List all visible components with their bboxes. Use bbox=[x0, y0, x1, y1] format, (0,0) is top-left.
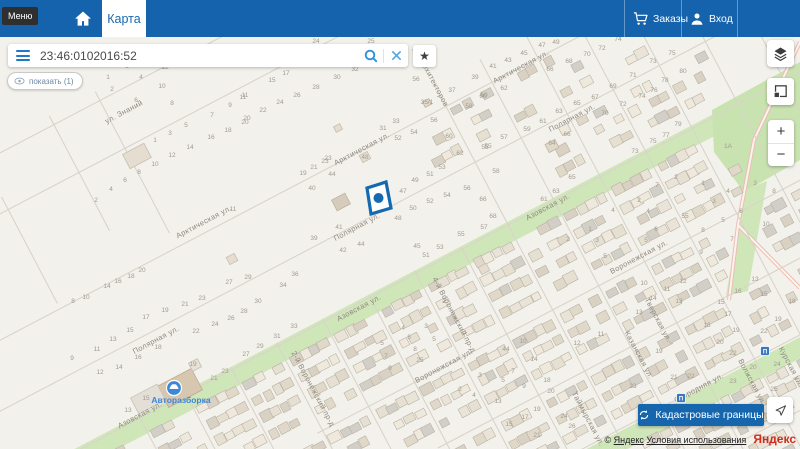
lot-number: 22 bbox=[192, 328, 200, 335]
lot-number: 28 bbox=[240, 308, 248, 315]
lot-number: 4 bbox=[401, 325, 405, 332]
lot-number: 21 bbox=[210, 375, 218, 382]
lot-number: 74 bbox=[638, 93, 646, 100]
lot-number: 5 bbox=[432, 336, 436, 343]
lot-number: 65 bbox=[568, 174, 576, 181]
lot-number: 11 bbox=[94, 346, 101, 353]
favorite-button[interactable]: ★ bbox=[413, 45, 436, 67]
lot-number: 5 bbox=[380, 340, 384, 347]
svg-text:П: П bbox=[763, 349, 767, 355]
lot-number: 53 bbox=[436, 244, 444, 251]
lot-number: 17 bbox=[282, 70, 290, 77]
lot-number: 45 bbox=[520, 50, 528, 57]
lot-number: 23 bbox=[198, 295, 206, 302]
show-results-label: показать (1) bbox=[29, 77, 74, 86]
lot-number: 45 bbox=[413, 243, 421, 250]
map-canvas[interactable]: 1312421068119752018161314121086421117151… bbox=[0, 0, 800, 449]
lot-number: 1 bbox=[106, 74, 110, 81]
frame-icon bbox=[772, 83, 789, 100]
lot-number: 56 bbox=[412, 76, 420, 83]
lot-number: 4 bbox=[611, 207, 615, 214]
lot-number: 2 bbox=[637, 197, 641, 204]
lot-number: 10 bbox=[640, 280, 648, 287]
lot-number: 75 bbox=[668, 50, 676, 57]
lot-number: 20 bbox=[716, 339, 724, 346]
lot-number: 6 bbox=[654, 226, 658, 233]
lot-number: 3 bbox=[712, 198, 716, 205]
menu-tooltip-label: Меню bbox=[8, 11, 32, 21]
lot-number: 6 bbox=[123, 177, 127, 184]
lot-number: 35/1 bbox=[421, 99, 434, 106]
lot-number: 4 bbox=[139, 74, 143, 81]
lot-number: 1 bbox=[588, 226, 592, 233]
lot-number: 73 bbox=[649, 58, 657, 65]
lot-number: 55 bbox=[681, 213, 689, 220]
lot-number: 18 bbox=[154, 344, 162, 351]
lot-number: 15 bbox=[126, 327, 134, 334]
lot-number: 36 bbox=[291, 271, 299, 278]
lot-number: 40 bbox=[308, 185, 316, 192]
lot-number: 79 bbox=[674, 121, 682, 128]
lot-number: 10 bbox=[82, 294, 90, 301]
lot-number: 4 bbox=[109, 186, 113, 193]
lot-number: 3 bbox=[478, 372, 482, 379]
lot-number: 1 bbox=[153, 137, 157, 144]
lot-number: 62 bbox=[456, 150, 464, 157]
lot-number: 64 bbox=[548, 140, 556, 147]
lot-number: 14 bbox=[103, 283, 111, 290]
lot-number: 15 bbox=[268, 77, 276, 84]
cadastral-borders-label: Кадастровые границы bbox=[655, 409, 763, 421]
lot-number: 3 bbox=[595, 237, 599, 244]
home-button[interactable] bbox=[70, 0, 96, 37]
lot-number: 16 bbox=[114, 278, 122, 285]
lot-number: 67 bbox=[591, 94, 599, 101]
lot-number: 12 bbox=[679, 278, 687, 285]
lot-number: 56 bbox=[430, 117, 438, 124]
lot-number: 2 bbox=[110, 86, 114, 93]
lot-number: 2 bbox=[566, 236, 570, 243]
lot-number: 65 bbox=[573, 100, 581, 107]
lot-number: 22 bbox=[729, 350, 737, 357]
lot-number: 10 bbox=[762, 221, 770, 228]
login-button[interactable]: Вход bbox=[690, 0, 733, 37]
lot-number: 34 bbox=[279, 282, 287, 289]
search-input[interactable] bbox=[38, 48, 359, 64]
lot-number: 47 bbox=[399, 188, 407, 195]
lot-number: 22 bbox=[760, 328, 768, 335]
lot-number: 26 bbox=[568, 423, 576, 430]
lot-number: 72 bbox=[598, 45, 606, 52]
lot-number: 30 bbox=[333, 74, 341, 81]
tab-map-label: Карта bbox=[107, 12, 140, 26]
lot-number: 75 bbox=[649, 138, 657, 145]
lot-number: 13 bbox=[635, 309, 643, 316]
lot-number: 7 bbox=[511, 368, 515, 375]
lot-number: 17 bbox=[724, 311, 732, 318]
map-svg: 1312421068119752018161314121086421117151… bbox=[0, 0, 800, 449]
lot-number: 19 bbox=[299, 170, 307, 177]
lot-number: 15 bbox=[505, 421, 513, 428]
lot-number: 23 bbox=[221, 368, 229, 375]
lot-number: 24 bbox=[211, 321, 219, 328]
lot-number: 8 bbox=[701, 227, 705, 234]
lot-number: 19 bbox=[189, 361, 197, 368]
user-icon bbox=[690, 12, 704, 26]
yandex-link[interactable]: Яндекс bbox=[614, 435, 644, 445]
map-attribution: © Яндекс Условия использования Яндекс bbox=[604, 432, 796, 446]
menu-tooltip[interactable]: Меню bbox=[2, 7, 38, 25]
yandex-logo[interactable]: Яндекс bbox=[753, 432, 796, 446]
lot-number: 14 bbox=[115, 364, 123, 371]
lot-number: 26 bbox=[227, 315, 235, 322]
lot-number: 49 bbox=[552, 39, 560, 46]
lot-number: 27 bbox=[225, 279, 233, 286]
lot-number: 6 bbox=[407, 334, 411, 341]
header-separator bbox=[681, 0, 682, 37]
header-separator bbox=[624, 0, 625, 37]
lot-number: 4 bbox=[726, 188, 730, 195]
lot-number: 63 bbox=[555, 108, 563, 115]
lot-number: 52 bbox=[426, 198, 434, 205]
lot-number: 24 bbox=[560, 413, 568, 420]
lot-number: 20 bbox=[138, 267, 146, 274]
orders-label: Заказы bbox=[653, 13, 688, 25]
poi-label: Авторазборка bbox=[151, 395, 210, 405]
selected-parcel[interactable] bbox=[367, 182, 391, 214]
lot-number: 25 bbox=[770, 386, 778, 393]
lot-number: 19 bbox=[533, 406, 541, 413]
lot-number: 66 bbox=[479, 196, 487, 203]
lot-number: 57 bbox=[480, 224, 488, 231]
lot-number: 53 bbox=[438, 164, 446, 171]
lot-number: 9 bbox=[388, 365, 392, 372]
lot-number: 19 bbox=[655, 348, 663, 355]
lot-number: 61 bbox=[539, 118, 547, 125]
lot-number: 19 bbox=[732, 327, 740, 334]
lot-number: 3 bbox=[424, 323, 428, 330]
lot-number: 56 bbox=[463, 185, 471, 192]
lot-number: 66 bbox=[546, 66, 554, 73]
lot-number: 22 bbox=[259, 107, 267, 114]
lot-number: 43 bbox=[504, 57, 512, 64]
refresh-icon bbox=[638, 409, 650, 421]
lot-number: 52 bbox=[394, 135, 402, 142]
lot-number: 11 bbox=[664, 286, 671, 293]
lot-number: 78 bbox=[661, 77, 669, 84]
lot-number: 60 bbox=[445, 133, 453, 140]
lot-number: 55 bbox=[484, 143, 492, 150]
lot-number: 5 bbox=[501, 377, 505, 384]
header-separator bbox=[737, 0, 738, 37]
lot-number: 44 bbox=[502, 346, 510, 353]
star-icon: ★ bbox=[419, 49, 430, 63]
lot-number: 8 bbox=[137, 169, 141, 176]
lot-number: 5 bbox=[644, 237, 648, 244]
lot-number: 60 bbox=[480, 92, 488, 99]
location-arrow-icon bbox=[773, 403, 788, 418]
lot-number: 14 bbox=[530, 356, 538, 363]
lot-number: 24 bbox=[773, 361, 781, 368]
orders-button[interactable]: Заказы bbox=[633, 0, 688, 37]
lot-number: 15 bbox=[717, 299, 725, 306]
lot-number: 5 bbox=[184, 122, 188, 129]
lot-number: 72 bbox=[619, 101, 627, 108]
lot-number: 16 bbox=[734, 288, 742, 295]
lot-number: 14 bbox=[186, 144, 194, 151]
menu-burger-icon[interactable] bbox=[8, 50, 38, 61]
login-label: Вход bbox=[709, 13, 733, 25]
lot-number: 9 bbox=[522, 383, 526, 390]
layers-icon bbox=[772, 45, 789, 62]
lot-number: 13 bbox=[751, 276, 759, 283]
lot-number: 20 bbox=[243, 115, 251, 122]
zoom-control: + − bbox=[768, 120, 794, 166]
transit-stop-icon[interactable]: П bbox=[761, 347, 770, 356]
layers-button[interactable] bbox=[767, 40, 794, 67]
zoom-out-button[interactable]: − bbox=[768, 144, 794, 167]
lot-number: 55 bbox=[457, 231, 465, 238]
lot-number: 66 bbox=[563, 131, 571, 138]
lot-number: 48 bbox=[361, 154, 369, 161]
cart-icon bbox=[633, 11, 648, 26]
lot-number: 7 bbox=[655, 182, 659, 189]
lot-number: 9 bbox=[699, 249, 703, 256]
lot-number: 21 bbox=[670, 374, 678, 381]
lot-number: 41 bbox=[489, 63, 497, 70]
lot-number: 70 bbox=[601, 110, 609, 117]
zoom-in-button[interactable]: + bbox=[768, 120, 794, 143]
eye-icon bbox=[14, 77, 25, 85]
app-window: 1312421068119752018161314121086421117151… bbox=[0, 0, 800, 449]
terms-link[interactable]: Условия использования bbox=[646, 435, 746, 445]
lot-number: 25 bbox=[416, 357, 424, 364]
lot-number: 59 bbox=[523, 126, 531, 133]
lot-number: 33 bbox=[392, 118, 400, 125]
lot-number: 51 bbox=[422, 252, 430, 259]
lot-number: 22 bbox=[687, 373, 695, 380]
lot-number: 32 bbox=[351, 66, 359, 73]
lot-number: 7 bbox=[210, 112, 214, 119]
lot-number: 16 bbox=[207, 134, 215, 141]
attribution-line: © Яндекс Условия использования bbox=[604, 435, 746, 445]
lot-number: 54 bbox=[410, 129, 418, 136]
lot-number: 2 bbox=[94, 197, 98, 204]
lot-number: 6 bbox=[739, 208, 743, 215]
lot-number: 70 bbox=[583, 51, 591, 58]
lot-number: 51 bbox=[426, 171, 434, 178]
lot-number: 8 bbox=[772, 188, 776, 195]
lot-number: 19 bbox=[774, 316, 782, 323]
locate-me-button[interactable] bbox=[767, 397, 793, 423]
lot-number: 8 bbox=[71, 298, 75, 305]
lot-number: 21 bbox=[310, 164, 318, 171]
lot-number: 12 bbox=[96, 369, 104, 376]
lot-number: 37 bbox=[448, 87, 456, 94]
lot-number: 21 bbox=[181, 301, 189, 308]
search-icon bbox=[364, 49, 378, 63]
lot-number: 23 bbox=[729, 378, 737, 385]
lot-number: 17 bbox=[521, 414, 529, 421]
lot-number: 26 bbox=[293, 92, 301, 99]
lot-number: 44 bbox=[357, 241, 365, 248]
lot-number: 9 bbox=[228, 102, 232, 109]
lot-number: 68 bbox=[565, 58, 573, 65]
transit-stop-icon[interactable]: П bbox=[677, 394, 686, 403]
lot-number: 63 bbox=[552, 188, 560, 195]
lot-number: 30 bbox=[254, 298, 262, 305]
lot-number: 31 bbox=[273, 333, 281, 340]
lot-number: 4 bbox=[472, 392, 476, 399]
lot-number: 42 bbox=[339, 247, 347, 254]
home-icon bbox=[73, 9, 93, 29]
lot-number: 71 bbox=[629, 72, 637, 79]
search-bar bbox=[8, 44, 408, 67]
lot-number: 39 bbox=[471, 74, 479, 81]
lot-number: 8 bbox=[413, 346, 417, 353]
lot-number: 11 bbox=[242, 92, 249, 99]
lot-number: 23 bbox=[321, 158, 329, 165]
lot-number: 11 bbox=[598, 331, 605, 338]
lot-number: 62 bbox=[500, 85, 508, 92]
lot-number: 10 bbox=[519, 338, 527, 345]
lot-number: 27 bbox=[242, 351, 250, 358]
lot-number: 7 bbox=[384, 353, 388, 360]
show-results-button[interactable]: показать (1) bbox=[7, 72, 83, 90]
lot-number: 17 bbox=[142, 314, 150, 321]
lot-number: 9 bbox=[70, 355, 74, 362]
lot-number: 4 bbox=[646, 208, 650, 215]
lot-number: 2 bbox=[458, 386, 462, 393]
lot-number: 24 bbox=[276, 99, 284, 106]
lot-number: 29 bbox=[256, 343, 264, 350]
lot-number: 13 bbox=[494, 398, 502, 405]
lot-number: 29 bbox=[244, 274, 252, 281]
lot-number: 7 bbox=[730, 236, 734, 243]
lot-number: 15 bbox=[760, 291, 768, 298]
lot-number: 13 bbox=[109, 336, 117, 343]
lot-number: 23 bbox=[629, 383, 637, 390]
lot-number: 10 bbox=[151, 161, 159, 168]
lot-number: 33 bbox=[290, 323, 298, 330]
lot-number: 50 bbox=[409, 205, 417, 212]
lot-number: 3 bbox=[168, 130, 172, 137]
lot-number: 39 bbox=[310, 235, 318, 242]
parcel-marker-dot bbox=[374, 193, 384, 203]
lot-number: 18 bbox=[788, 298, 796, 305]
lot-number: 18 bbox=[127, 273, 135, 280]
lot-number: 12 bbox=[168, 152, 176, 159]
lot-number: 18 bbox=[543, 377, 551, 384]
lot-number: 5 bbox=[603, 253, 607, 260]
lot-number: 58 bbox=[465, 103, 473, 110]
close-icon bbox=[391, 50, 402, 61]
lot-number: 48 bbox=[394, 215, 402, 222]
lot-number: 10 bbox=[158, 83, 166, 90]
lot-number: 44 bbox=[328, 171, 336, 178]
lot-number: 58 bbox=[492, 168, 500, 175]
lot-number: 21 bbox=[533, 432, 541, 439]
lot-number: 28 bbox=[312, 84, 320, 91]
lot-number: 1 bbox=[701, 180, 705, 187]
cadastral-borders-button[interactable]: Кадастровые границы bbox=[638, 404, 764, 426]
lot-number: 80 bbox=[679, 68, 687, 75]
svg-text:П: П bbox=[679, 396, 683, 402]
search-button[interactable] bbox=[359, 49, 383, 63]
lot-number: 49 bbox=[411, 177, 419, 184]
top-navbar: Карта Заказы Вход bbox=[0, 0, 800, 37]
lot-number: 5 bbox=[721, 217, 725, 224]
tab-map[interactable]: Карта bbox=[102, 0, 146, 37]
clear-search-button[interactable] bbox=[384, 50, 408, 61]
lot-number: 69 bbox=[609, 83, 617, 90]
lot-number: 18 bbox=[703, 322, 711, 329]
lot-number: 20 bbox=[547, 388, 555, 395]
lot-number: 68 bbox=[489, 213, 497, 220]
lot-number: 57 bbox=[500, 134, 508, 141]
lot-number: 73 bbox=[631, 148, 639, 155]
lot-number: 15 bbox=[142, 395, 150, 402]
lot-number: 2 bbox=[674, 174, 678, 181]
lot-number: 1А bbox=[724, 143, 733, 150]
area-select-button[interactable] bbox=[767, 78, 794, 105]
lot-number: 8 bbox=[170, 100, 174, 107]
lot-number: 13 bbox=[124, 407, 132, 414]
lot-number: 12 bbox=[573, 340, 581, 347]
lot-number: 76 bbox=[650, 87, 658, 94]
lot-number: 77 bbox=[662, 132, 670, 139]
lot-number: 19 bbox=[161, 307, 169, 314]
lot-number: 18 bbox=[224, 127, 232, 134]
lot-number: 54 bbox=[443, 192, 451, 199]
lot-number: 3 bbox=[753, 180, 757, 187]
lot-number: 13 bbox=[675, 298, 683, 305]
lot-number: 74 bbox=[614, 36, 622, 43]
